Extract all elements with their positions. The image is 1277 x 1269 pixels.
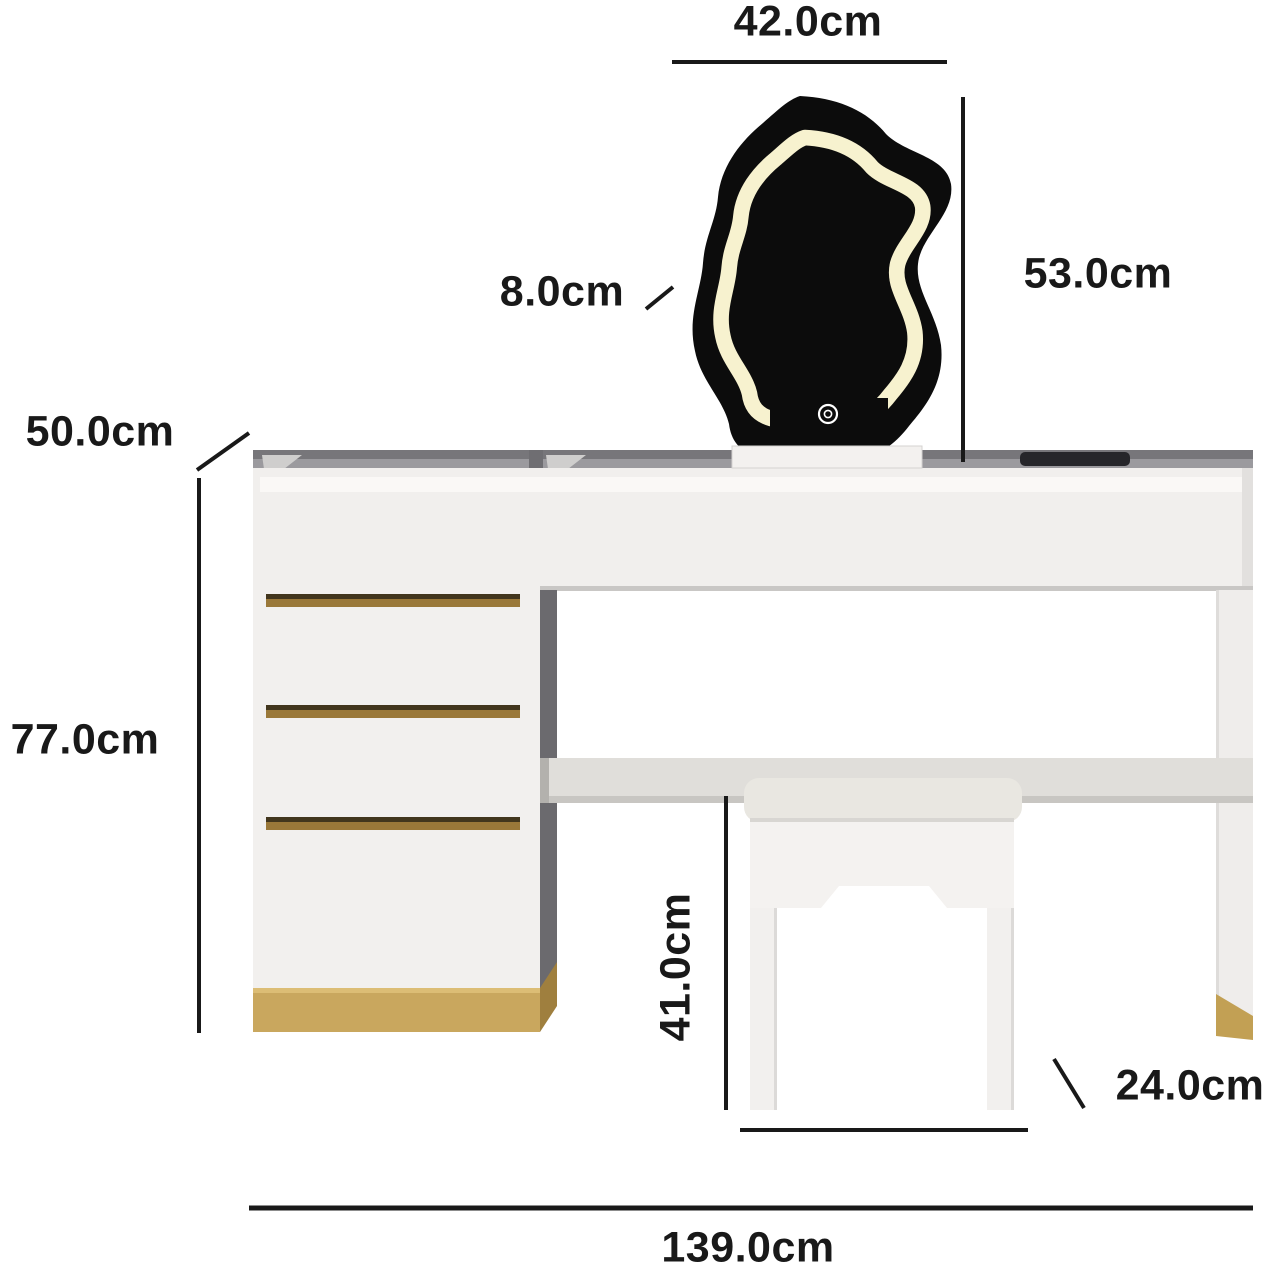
desk-apron-highlight (260, 477, 1246, 492)
dim-tick-mirror-depth (646, 287, 673, 309)
dim-tick-desk-depth (197, 433, 249, 470)
stool-body (750, 822, 1014, 908)
drawer-handle-slot-2 (266, 705, 520, 718)
stool-cushion (744, 778, 1022, 822)
led-mirror (693, 96, 952, 461)
drawer-unit-front (253, 590, 540, 988)
dim-tick-stool-depth (1054, 1059, 1084, 1108)
drawer-handle-slot-1 (266, 594, 520, 607)
desk-right-leg (1216, 590, 1253, 1040)
drawer-unit (253, 590, 557, 1032)
gold-base-highlight (253, 988, 540, 993)
furniture-illustration (0, 0, 1277, 1269)
desk-tabletop (253, 446, 1253, 591)
drawer-handle-slot-3 (266, 817, 520, 830)
under-top-shadow (540, 586, 1253, 591)
right-leg-edge (1216, 590, 1219, 1036)
stool-leg-left (750, 908, 777, 1110)
shelf-left-cap (540, 758, 549, 803)
stool-leg-left-edge (774, 908, 777, 1110)
desk-apron-right-edge (1242, 468, 1253, 590)
dimension-diagram: 42.0cm 53.0cm 8.0cm 50.0cm 77.0cm 41.0cm… (0, 0, 1277, 1269)
right-leg-panel (1216, 590, 1253, 1036)
stool-leg-right-edge (1011, 908, 1014, 1110)
tabletop-seam (529, 450, 543, 468)
stool-leg-right (987, 908, 1014, 1110)
drawer-unit-gold-base (253, 988, 540, 1032)
stool (744, 778, 1022, 1110)
charging-pad (1020, 452, 1130, 466)
mirror-base-plate (732, 446, 922, 468)
